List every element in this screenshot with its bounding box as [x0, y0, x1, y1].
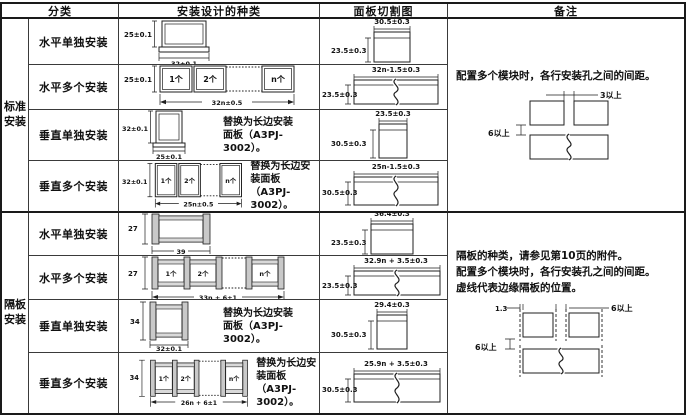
cutout-drawing: 29.4±0.3 30.5±0.3 [329, 300, 439, 353]
svg-text:6以上: 6以上 [611, 303, 633, 313]
svg-text:25±0.1: 25±0.1 [124, 31, 152, 39]
svg-text:1个: 1个 [159, 375, 170, 383]
cutout-cell: 32.9n + 3.5±0.3 23.5±0.3 [320, 256, 448, 300]
svg-text:32±0.1: 32±0.1 [122, 125, 148, 133]
svg-text:6以上: 6以上 [475, 342, 497, 352]
svg-text:27: 27 [128, 270, 138, 278]
svg-text:39: 39 [176, 248, 186, 256]
design-drawing: 32±0.1 1个 2个 n个 25n±0.5 [122, 161, 245, 212]
svg-text:32±0.1: 32±0.1 [156, 345, 182, 352]
group-partition-mounting: 隔板安装 [2, 213, 29, 413]
design-note: 替换为长边安装面板（A3PJ-3002）。 [256, 357, 319, 409]
svg-text:25±0.1: 25±0.1 [124, 76, 152, 84]
design-drawing: 34 1个 2个 n个 26n + 6±1 [122, 356, 251, 410]
header-design-type: 安装设计的种类 [119, 4, 320, 19]
category-label: 水平单独安装 [29, 213, 119, 256]
design-cell: 32±0.1 1个 2个 n个 25n±0.5 替换为长边安装面板（A3PJ-3… [119, 161, 320, 213]
mounting-spec-table: 分类 安装设计的种类 面板切割图 备注 标准安装 隔板安装 水平单独安装 25±… [0, 2, 686, 415]
remark-text: 配置多个模块时，各行安装孔之间的间距。 [456, 265, 656, 280]
svg-text:34: 34 [130, 374, 140, 382]
svg-text:34: 34 [130, 318, 140, 326]
svg-text:32n±0.5: 32n±0.5 [212, 99, 243, 107]
cutout-cell: 23.5±0.3 30.5±0.3 [320, 110, 448, 161]
category-label: 水平多个安装 [29, 256, 119, 300]
svg-text:2个: 2个 [197, 269, 209, 278]
svg-text:2个: 2个 [180, 375, 191, 383]
svg-text:32.9n + 3.5±0.3: 32.9n + 3.5±0.3 [364, 257, 428, 265]
svg-text:30.5±0.3: 30.5±0.3 [374, 19, 410, 26]
design-drawing: 32±0.1 25±0.1 [122, 110, 218, 161]
header-category: 分类 [2, 4, 119, 19]
design-cell: 25±0.1 32±0.1 [119, 19, 320, 65]
svg-text:25n±0.5: 25n±0.5 [183, 202, 213, 209]
cutout-cell: 25n-1.5±0.3 30.5±0.3 [320, 161, 448, 213]
design-cell: 32±0.1 25±0.1 替换为长边安装面板（A3PJ-3002）。 [119, 110, 320, 161]
svg-text:32n-1.5±0.3: 32n-1.5±0.3 [371, 66, 419, 74]
design-drawing: 34 32±0.1 [122, 300, 218, 352]
cutout-cell: 25.9n + 3.5±0.3 30.5±0.3 [320, 353, 448, 413]
design-drawing: 27 1个 2个 n个 33n + 6±1 [122, 256, 294, 300]
svg-text:2个: 2个 [184, 176, 195, 185]
svg-text:27: 27 [128, 225, 138, 233]
cutout-drawing: 32.9n + 3.5±0.3 23.5±0.3 [322, 256, 446, 300]
design-note: 替换为长边安装面板（A3PJ-3002）。 [223, 116, 293, 155]
cutout-cell: 32n-1.5±0.3 23.5±0.3 [320, 65, 448, 110]
svg-text:36.4±0.3: 36.4±0.3 [374, 213, 410, 218]
svg-text:25±0.1: 25±0.1 [156, 153, 182, 161]
cutout-drawing: 25.9n + 3.5±0.3 30.5±0.3 [322, 358, 446, 408]
svg-text:1.3: 1.3 [495, 305, 508, 313]
design-cell: 34 1个 2个 n个 26n + 6±1 替换为长边安装面板（A3PJ-300… [119, 353, 320, 413]
remark-text: 隔板的种类，请参见第10页的附件。 [456, 249, 628, 264]
cutout-drawing: 36.4±0.3 23.5±0.3 [329, 213, 439, 256]
cutout-drawing: 30.5±0.3 23.5±0.3 [329, 19, 439, 65]
svg-text:3以上: 3以上 [600, 90, 622, 100]
design-cell: 25±0.1 1个 2个 n个 32n±0.5 [119, 65, 320, 110]
design-note: 替换为长边安装面板（A3PJ-3002）。 [223, 307, 293, 346]
design-cell: 27 1个 2个 n个 33n + 6±1 [119, 256, 320, 300]
svg-text:30.5±0.3: 30.5±0.3 [322, 189, 358, 197]
header-remarks: 备注 [448, 4, 684, 19]
svg-text:29.4±0.3: 29.4±0.3 [374, 301, 410, 309]
category-label: 垂直多个安装 [29, 353, 119, 413]
svg-text:23.5±0.3: 23.5±0.3 [331, 239, 367, 247]
remarks-standard: 配置多个模块时，各行安装孔之间的间距。 3以上 6以上 [448, 19, 684, 213]
design-drawing: 25±0.1 32±0.1 [122, 19, 312, 65]
design-cell: 27 39 [119, 213, 320, 256]
remarks-partition: 隔板的种类，请参见第10页的附件。 配置多个模块时，各行安装孔之间的间距。 虚线… [448, 213, 684, 413]
svg-text:n个: n个 [259, 269, 271, 278]
cutout-cell: 29.4±0.3 30.5±0.3 [320, 300, 448, 353]
svg-text:n个: n个 [229, 375, 240, 383]
design-note: 替换为长边安装面板（A3PJ-3002）。 [250, 161, 319, 212]
remark-text: 虚线代表边缘隔板的位置。 [456, 281, 582, 296]
cutout-drawing: 32n-1.5±0.3 23.5±0.3 [322, 65, 446, 110]
svg-text:1个: 1个 [161, 176, 172, 185]
svg-text:25.9n + 3.5±0.3: 25.9n + 3.5±0.3 [364, 360, 428, 368]
category-label: 水平多个安装 [29, 65, 119, 110]
svg-text:30.5±0.3: 30.5±0.3 [331, 140, 367, 148]
svg-text:23.5±0.3: 23.5±0.3 [322, 91, 358, 99]
cutout-cell: 30.5±0.3 23.5±0.3 [320, 19, 448, 65]
design-drawing: 27 39 [122, 213, 242, 256]
svg-text:n个: n个 [225, 176, 237, 185]
svg-text:1个: 1个 [165, 269, 177, 278]
svg-text:6以上: 6以上 [488, 128, 510, 138]
group-standard-mounting: 标准安装 [2, 19, 29, 213]
cutout-cell: 36.4±0.3 23.5±0.3 [320, 213, 448, 256]
svg-text:2个: 2个 [203, 74, 218, 84]
svg-text:26n + 6±1: 26n + 6±1 [181, 400, 217, 407]
spacing-diagram: 3以上 6以上 [486, 89, 646, 161]
svg-text:1个: 1个 [169, 74, 184, 84]
cutout-drawing: 23.5±0.3 30.5±0.3 [329, 110, 439, 161]
remark-text: 配置多个模块时，各行安装孔之间的间距。 [456, 69, 656, 84]
svg-text:30.5±0.3: 30.5±0.3 [322, 386, 358, 394]
svg-text:25n-1.5±0.3: 25n-1.5±0.3 [371, 163, 419, 171]
category-label: 水平单独安装 [29, 19, 119, 65]
design-drawing: 25±0.1 1个 2个 n个 32n±0.5 [122, 65, 312, 110]
svg-text:30.5±0.3: 30.5±0.3 [331, 331, 367, 339]
svg-text:23.5±0.3: 23.5±0.3 [322, 282, 358, 290]
category-label: 垂直单独安装 [29, 110, 119, 161]
design-cell: 34 32±0.1 替换为长边安装面板（A3PJ-3002）。 [119, 300, 320, 353]
svg-text:n个: n个 [271, 74, 286, 84]
cutout-drawing: 25n-1.5±0.3 30.5±0.3 [322, 161, 446, 211]
header-panel-cutout: 面板切割图 [320, 4, 448, 19]
category-label: 垂直单独安装 [29, 300, 119, 353]
svg-text:23.5±0.3: 23.5±0.3 [331, 47, 367, 55]
spacing-diagram: 1.3 6以上 6以上 [471, 301, 661, 377]
svg-text:32±0.1: 32±0.1 [122, 179, 147, 186]
category-label: 垂直多个安装 [29, 161, 119, 213]
svg-text:23.5±0.3: 23.5±0.3 [375, 110, 411, 118]
